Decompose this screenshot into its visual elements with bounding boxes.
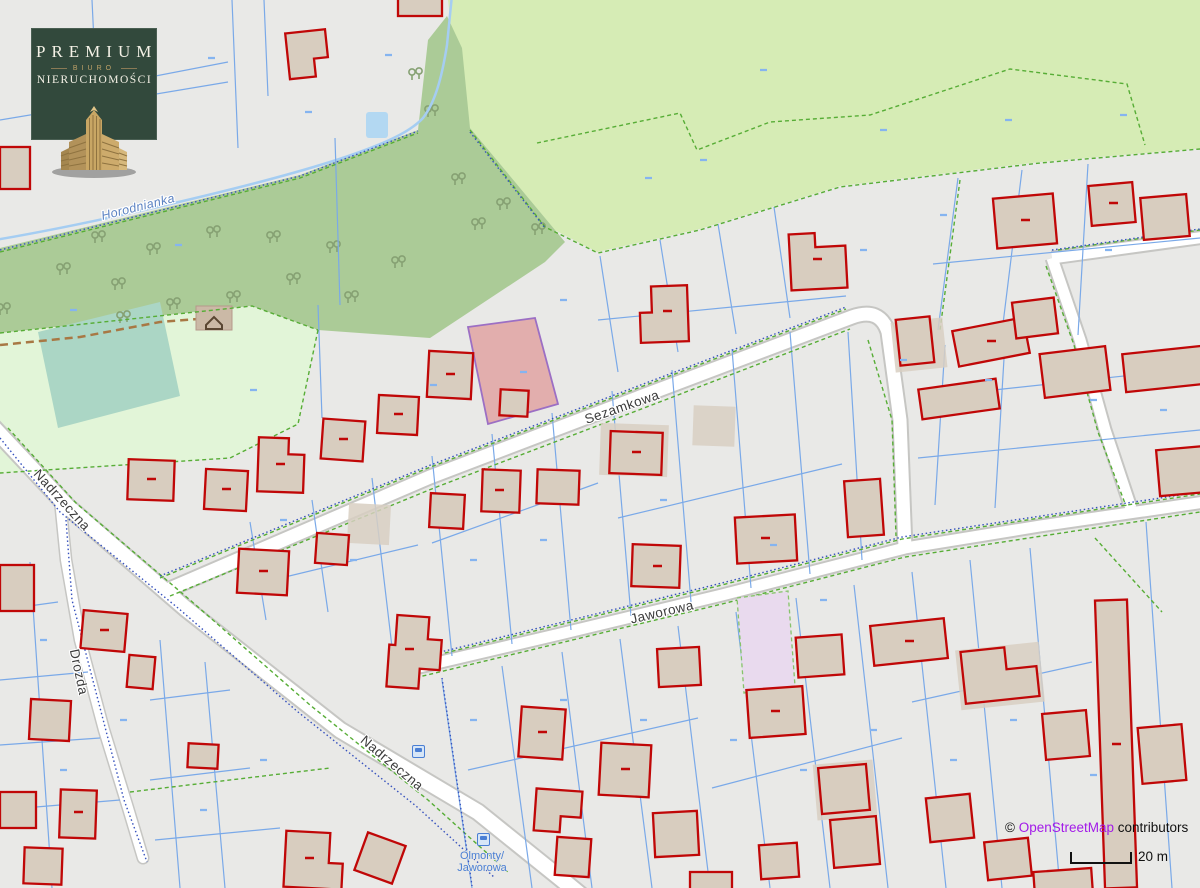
map-render: [0, 0, 1200, 888]
bus-stop-label: Olmonty/ Jaworowa: [447, 850, 517, 874]
logo-subtitle: BIURO: [31, 65, 157, 72]
bus-stop-line1: Olmonty/: [460, 850, 504, 862]
gazebo-building: [196, 306, 232, 330]
scale-bar: [1070, 852, 1132, 864]
lavender-parcel: [737, 591, 795, 693]
attribution: © OpenStreetMap contributors: [1005, 820, 1188, 835]
scale-label: 20 m: [1138, 849, 1168, 864]
openstreetmap-link[interactable]: OpenStreetMap: [1019, 820, 1114, 835]
contributors-text: contributors: [1114, 820, 1188, 835]
bus-stop-line2: Jaworowa: [457, 862, 507, 874]
map-canvas[interactable]: Sezamkowa Jaworowa Nadrzeczna Nadrzeczna…: [0, 0, 1200, 888]
bus-stop-icon-2: [412, 745, 425, 758]
meadow-area: [440, 0, 1200, 252]
logo-building-icon: [31, 84, 157, 180]
logo-title: PREMIUM: [36, 42, 157, 62]
agency-logo: PREMIUM BIURO NIERUCHOMOŚCI: [31, 28, 157, 140]
bus-stop-icon: [477, 833, 490, 846]
pond: [366, 112, 388, 138]
copyright-symbol: ©: [1005, 820, 1019, 835]
